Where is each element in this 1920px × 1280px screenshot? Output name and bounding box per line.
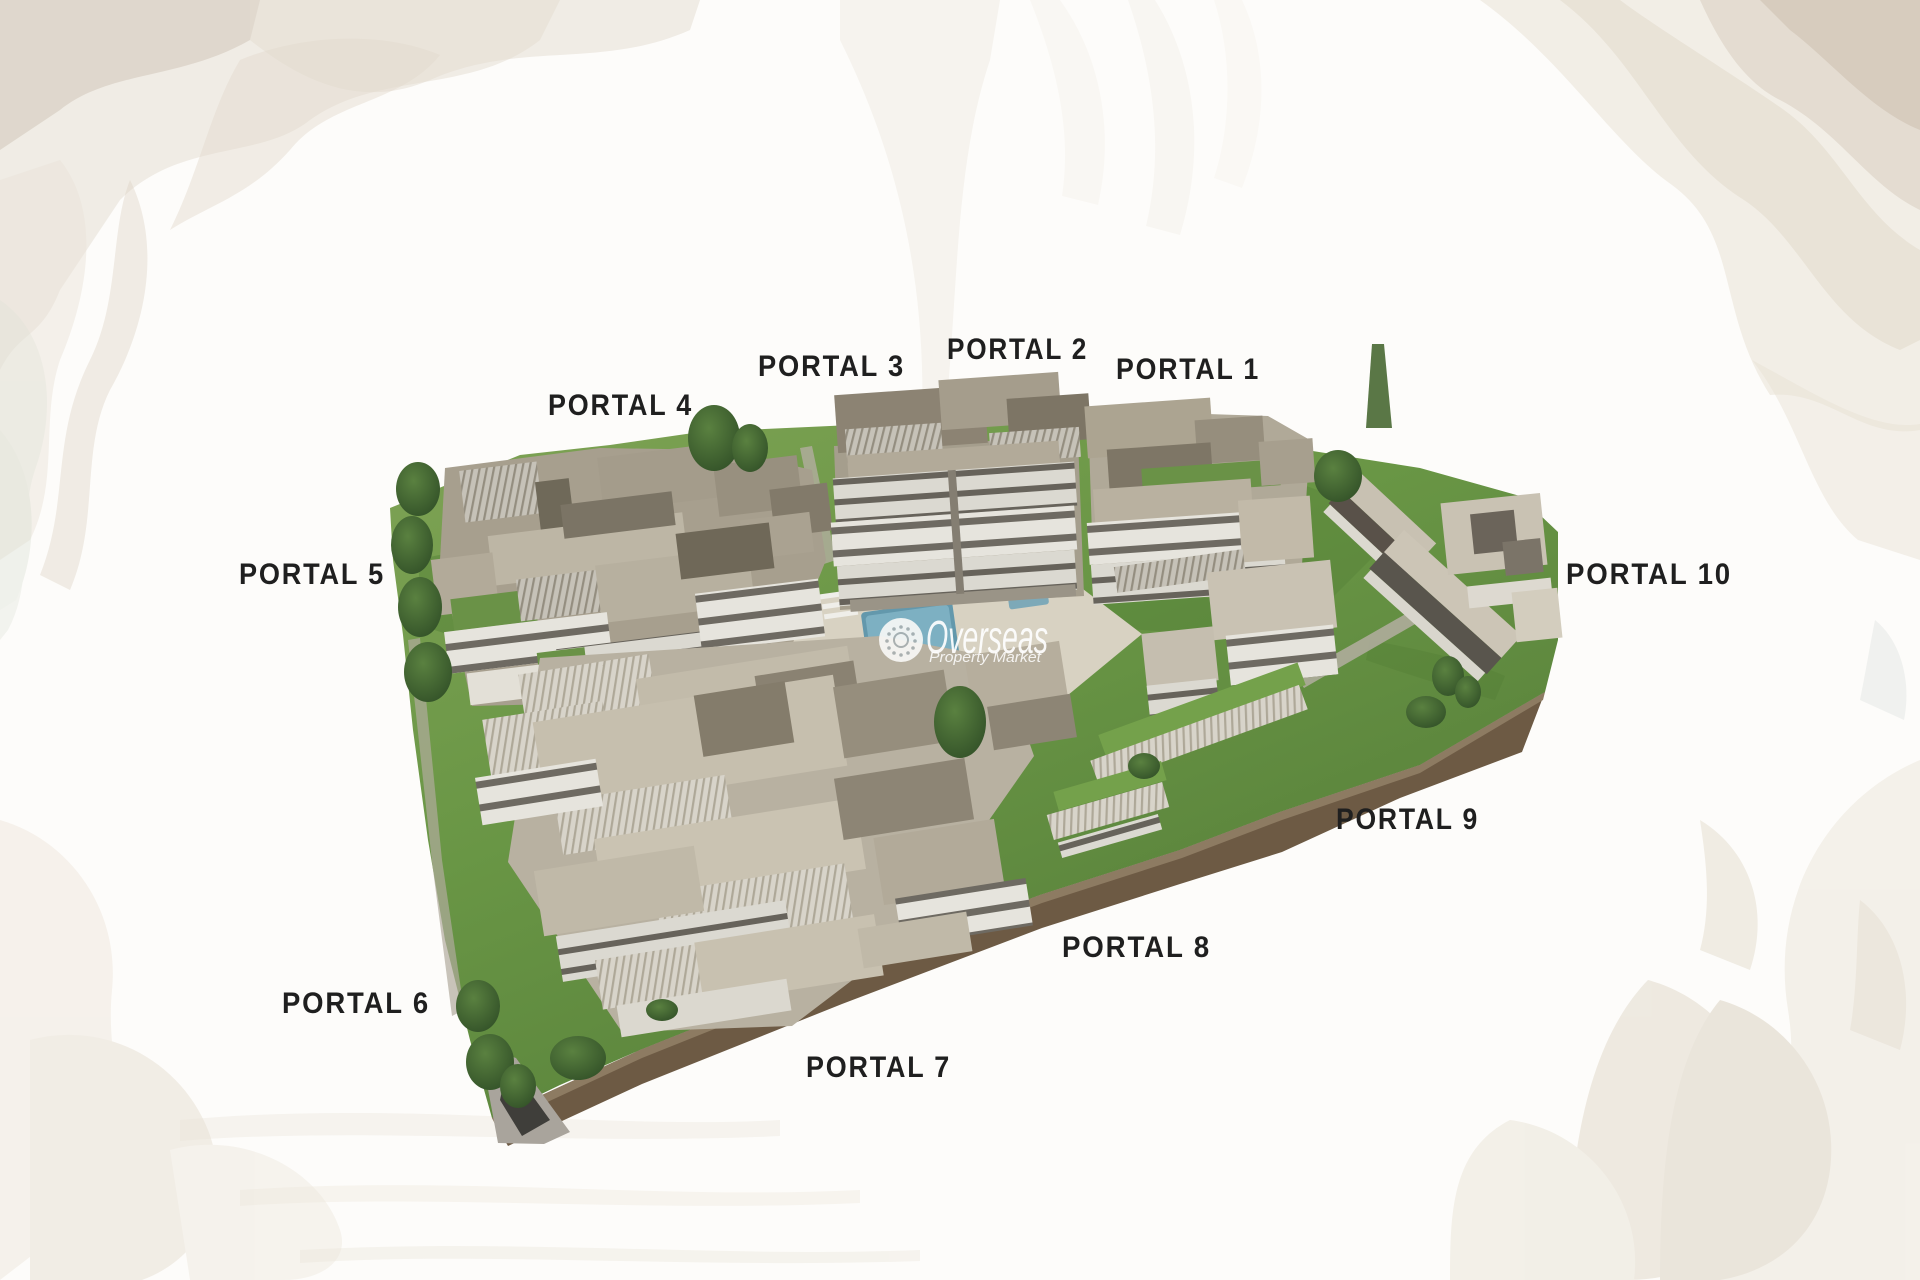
svg-text:PORTAL 3: PORTAL 3 (758, 350, 905, 383)
svg-text:PORTAL 4: PORTAL 4 (548, 389, 693, 422)
svg-text:PORTAL 2: PORTAL 2 (947, 333, 1088, 366)
svg-text:PORTAL 10: PORTAL 10 (1566, 558, 1732, 591)
svg-text:PORTAL 7: PORTAL 7 (806, 1051, 951, 1084)
svg-text:PORTAL 9: PORTAL 9 (1336, 803, 1479, 836)
svg-text:PORTAL 1: PORTAL 1 (1116, 353, 1260, 386)
svg-text:PORTAL 8: PORTAL 8 (1062, 931, 1211, 964)
svg-text:PORTAL 5: PORTAL 5 (239, 558, 385, 591)
svg-text:PORTAL 6: PORTAL 6 (282, 987, 430, 1020)
svg-text:Property Market: Property Market (929, 649, 1042, 666)
